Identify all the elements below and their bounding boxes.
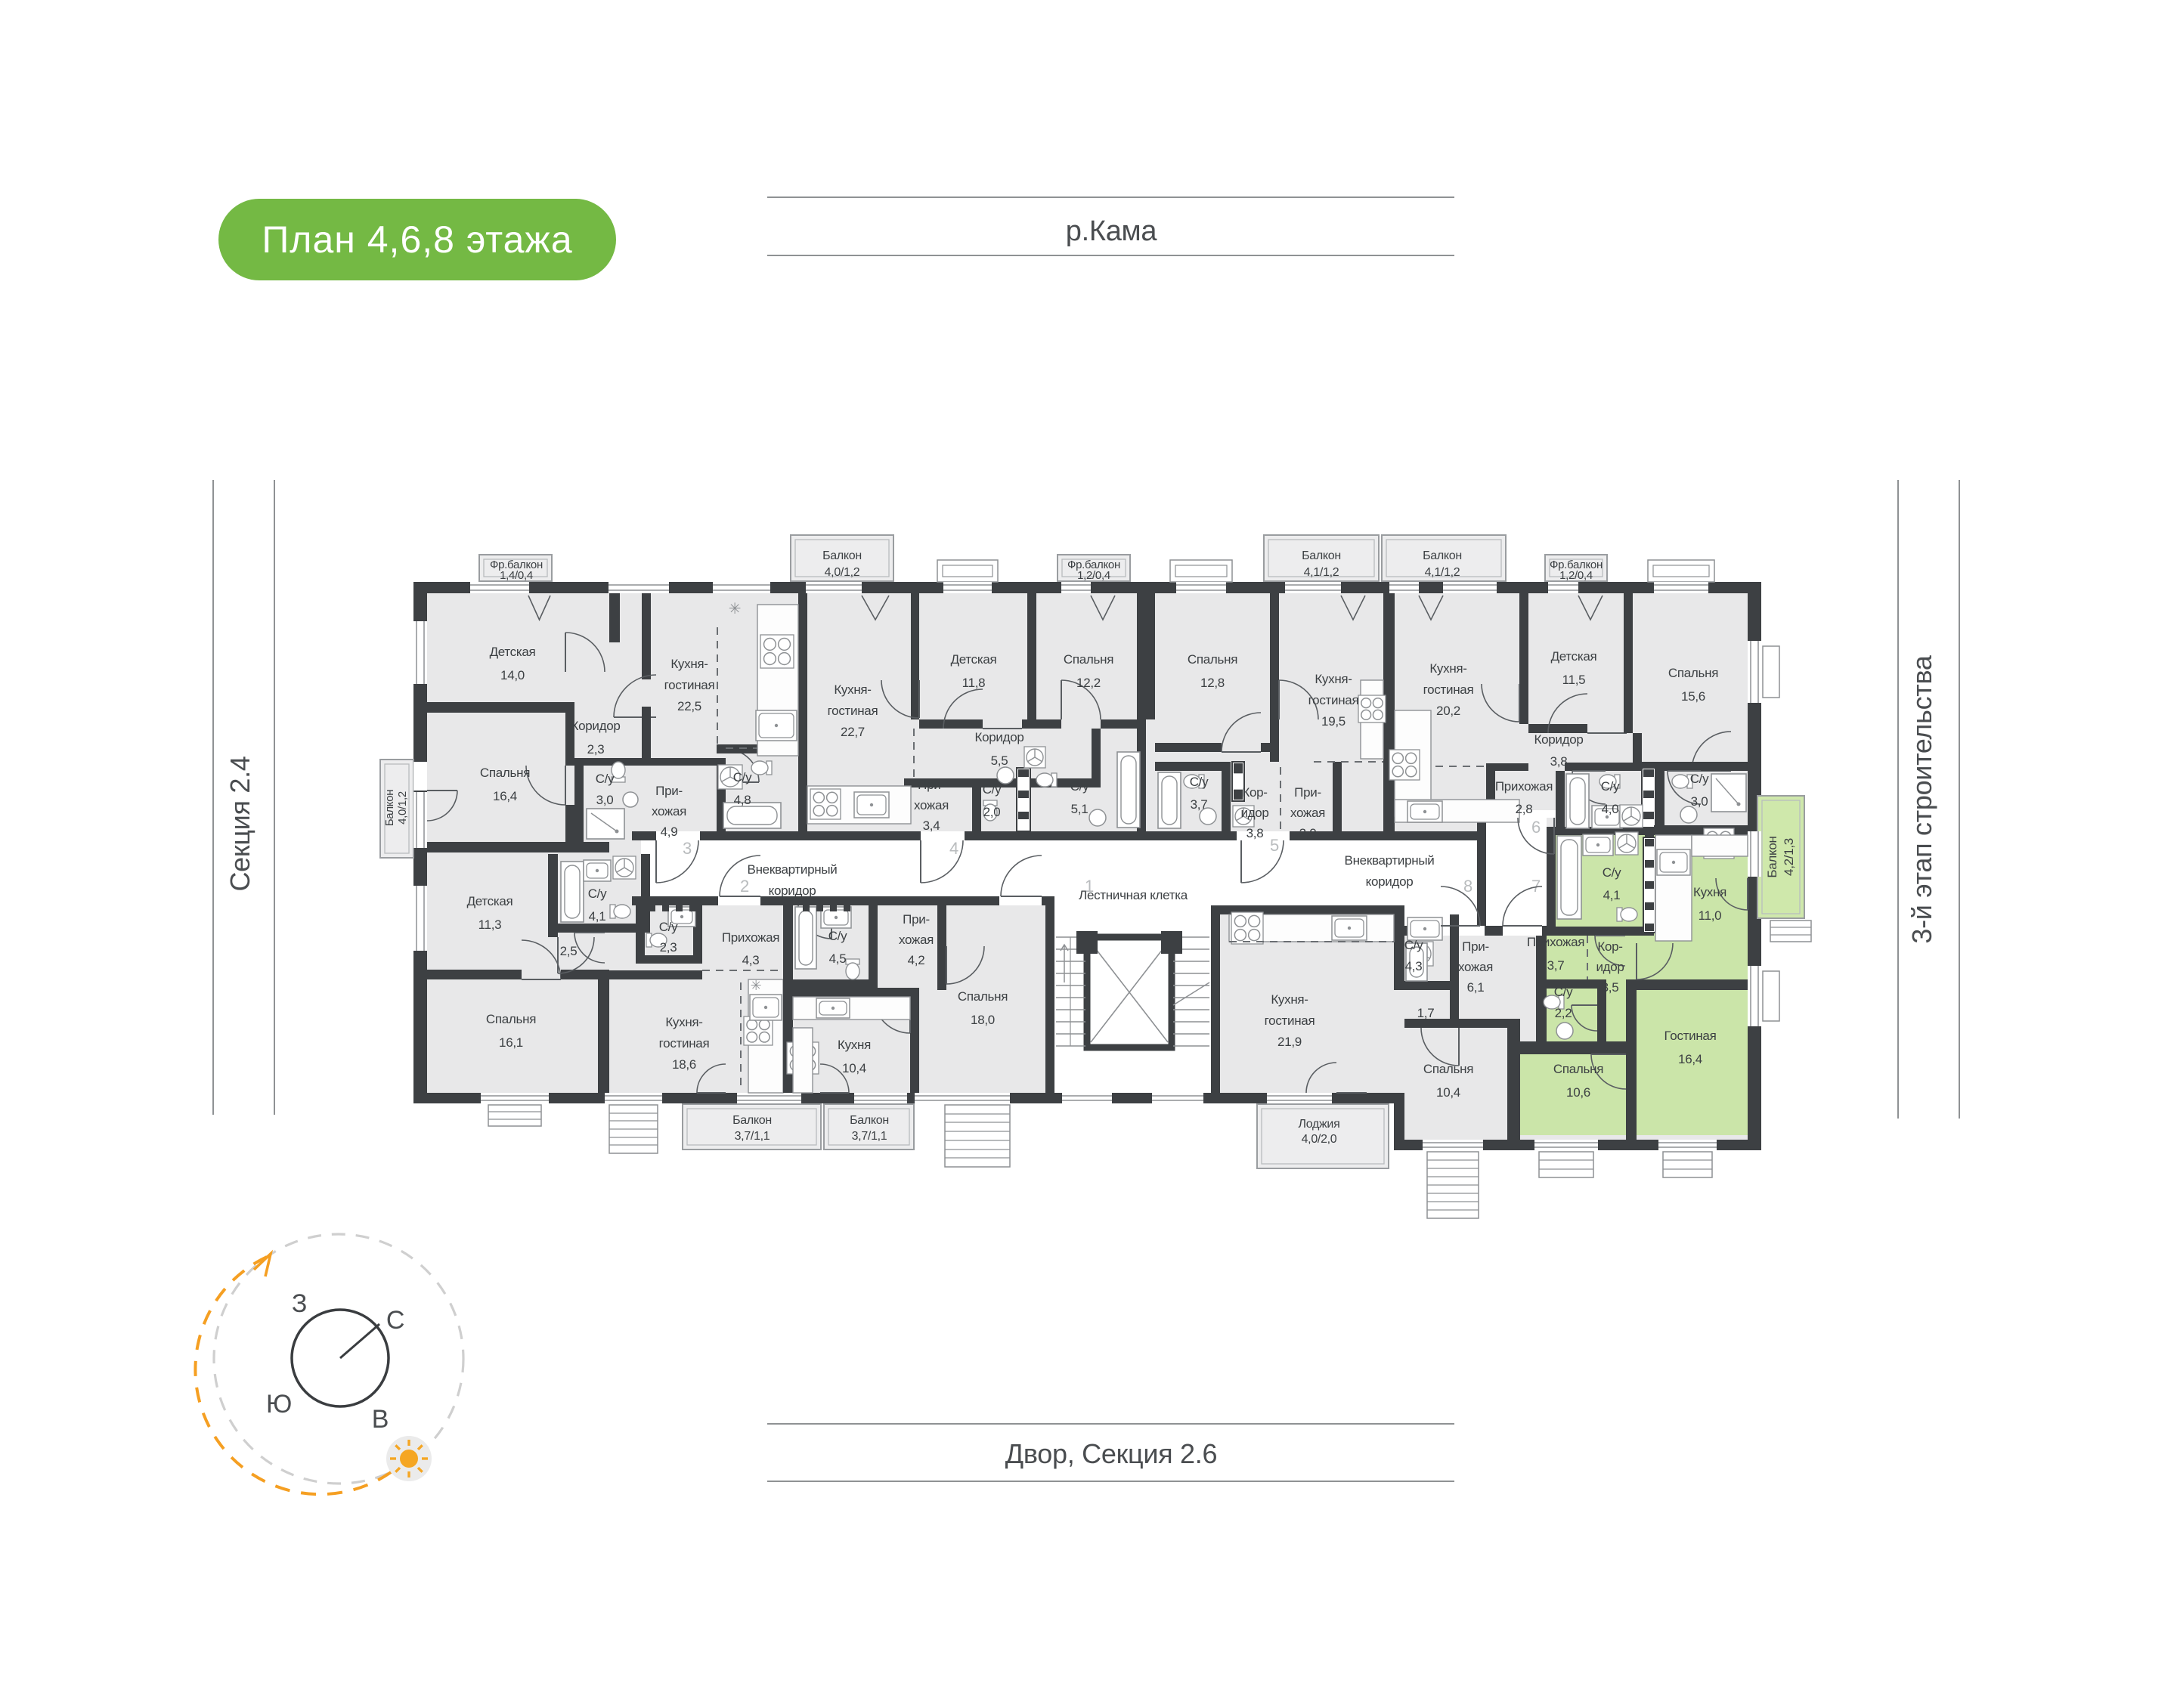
- svg-text:Спальня: Спальня: [1668, 666, 1718, 680]
- svg-text:С/у: С/у: [588, 886, 607, 901]
- svg-text:З: З: [292, 1289, 307, 1318]
- svg-text:Лоджия: Лоджия: [1299, 1118, 1340, 1131]
- svg-text:5: 5: [1270, 836, 1279, 855]
- svg-text:Спальня: Спальня: [958, 989, 1008, 1004]
- svg-text:Детская: Детская: [467, 894, 513, 908]
- svg-text:10,4: 10,4: [1436, 1085, 1460, 1100]
- svg-text:4,2: 4,2: [908, 953, 925, 967]
- svg-text:2,8: 2,8: [1516, 802, 1533, 816]
- svg-text:С/у: С/у: [983, 782, 1002, 797]
- svg-text:С/у: С/у: [1601, 779, 1620, 794]
- svg-text:Внеквартирный: Внеквартирный: [748, 862, 838, 877]
- svg-text:4,0/2,0: 4,0/2,0: [1302, 1133, 1337, 1146]
- svg-text:5,5: 5,5: [991, 753, 1008, 768]
- svg-text:С/у: С/у: [733, 770, 752, 784]
- svg-text:Спальня: Спальня: [1064, 652, 1113, 667]
- svg-text:16,4: 16,4: [1678, 1052, 1702, 1066]
- svg-text:1,4/0,4: 1,4/0,4: [500, 569, 533, 582]
- svg-text:При-: При-: [1294, 785, 1321, 800]
- svg-text:Балкон: Балкон: [732, 1114, 772, 1127]
- svg-text:11,5: 11,5: [1562, 673, 1586, 687]
- svg-text:Кухня: Кухня: [838, 1038, 871, 1052]
- svg-text:С/у: С/у: [828, 929, 847, 943]
- svg-text:3,0: 3,0: [1691, 794, 1708, 809]
- svg-text:10,6: 10,6: [1566, 1085, 1590, 1100]
- svg-text:4,1: 4,1: [589, 909, 606, 924]
- svg-text:4,0/1,2: 4,0/1,2: [825, 566, 860, 579]
- svg-text:4,9: 4,9: [661, 825, 678, 839]
- svg-text:16,1: 16,1: [499, 1035, 523, 1050]
- svg-text:2,5: 2,5: [560, 944, 578, 958]
- svg-text:С/у: С/у: [1404, 938, 1423, 952]
- svg-text:С/у: С/у: [1690, 772, 1709, 786]
- svg-text:Балкон: Балкон: [822, 549, 862, 562]
- svg-text:11,0: 11,0: [1699, 908, 1722, 923]
- svg-text:Внеквартирный: Внеквартирный: [1345, 853, 1435, 868]
- svg-text:Спальня: Спальня: [486, 1012, 536, 1026]
- svg-text:22,7: 22,7: [841, 725, 865, 739]
- svg-text:Кухня-: Кухня-: [670, 657, 708, 671]
- svg-text:хожая: хожая: [1458, 960, 1493, 974]
- svg-text:Прихожая: Прихожая: [1527, 935, 1584, 949]
- svg-text:Гостиная: Гостиная: [1664, 1029, 1717, 1043]
- svg-text:С/у: С/у: [1190, 775, 1209, 789]
- svg-text:3,7/1,1: 3,7/1,1: [852, 1130, 887, 1143]
- svg-text:✳: ✳: [751, 978, 762, 993]
- svg-text:гостиная: гостиная: [1308, 693, 1359, 707]
- svg-text:гостиная: гостиная: [659, 1036, 710, 1050]
- svg-text:Прихожая: Прихожая: [1495, 779, 1553, 794]
- svg-text:Лестничная клетка: Лестничная клетка: [1079, 888, 1188, 902]
- svg-text:С/у: С/у: [659, 920, 678, 934]
- svg-text:4,2/1,3: 4,2/1,3: [1782, 838, 1796, 876]
- svg-text:гостиная: гостиная: [828, 704, 878, 718]
- svg-text:19,5: 19,5: [1321, 714, 1346, 729]
- svg-text:Кухня-: Кухня-: [665, 1015, 702, 1029]
- svg-text:1,2/0,4: 1,2/0,4: [1077, 569, 1110, 582]
- svg-text:3-й этап строительства: 3-й этап строительства: [1906, 654, 1937, 944]
- svg-text:18,0: 18,0: [971, 1013, 995, 1027]
- svg-text:3,7: 3,7: [1547, 958, 1565, 973]
- svg-text:При-: При-: [1462, 939, 1489, 954]
- svg-text:Кухня-: Кухня-: [1429, 661, 1466, 676]
- svg-text:8: 8: [1463, 877, 1472, 896]
- svg-text:22,5: 22,5: [677, 699, 701, 713]
- svg-text:Спальня: Спальня: [480, 766, 530, 780]
- svg-text:4,1/1,2: 4,1/1,2: [1425, 566, 1460, 579]
- svg-text:Кухня: Кухня: [1693, 885, 1726, 899]
- svg-text:10,4: 10,4: [842, 1061, 866, 1075]
- svg-text:гостиная: гостиная: [1423, 682, 1474, 697]
- svg-text:21,9: 21,9: [1277, 1035, 1302, 1049]
- svg-text:хожая: хожая: [899, 933, 934, 947]
- svg-text:3,7: 3,7: [1191, 797, 1208, 812]
- svg-text:3,8: 3,8: [1246, 826, 1264, 840]
- svg-text:коридор: коридор: [769, 883, 816, 898]
- svg-text:С/у: С/у: [1070, 779, 1089, 794]
- svg-text:✳: ✳: [729, 601, 741, 617]
- svg-text:6: 6: [1531, 818, 1541, 837]
- svg-text:14,0: 14,0: [500, 668, 525, 682]
- svg-text:4,0: 4,0: [1602, 802, 1619, 816]
- svg-text:1,2/0,4: 1,2/0,4: [1559, 569, 1593, 582]
- svg-text:хожая: хожая: [652, 804, 686, 818]
- svg-text:3,4: 3,4: [923, 818, 940, 833]
- svg-text:Прихожая: Прихожая: [722, 930, 779, 945]
- svg-text:5,1: 5,1: [1071, 802, 1088, 816]
- svg-text:Детская: Детская: [490, 645, 536, 659]
- svg-text:Балкон: Балкон: [1302, 549, 1341, 562]
- svg-text:Кухня-: Кухня-: [834, 682, 871, 697]
- svg-text:1,7: 1,7: [1417, 1006, 1435, 1020]
- svg-text:11,8: 11,8: [962, 676, 986, 690]
- svg-text:При-: При-: [903, 912, 930, 927]
- svg-text:Двор, Секция 2.6: Двор, Секция 2.6: [1005, 1438, 1217, 1469]
- svg-text:2: 2: [740, 877, 749, 896]
- svg-text:Кухня-: Кухня-: [1271, 992, 1308, 1007]
- svg-text:3,0: 3,0: [596, 793, 614, 807]
- svg-text:Детская: Детская: [1551, 649, 1597, 664]
- svg-text:20,2: 20,2: [1436, 704, 1460, 718]
- svg-text:Ю: Ю: [266, 1390, 292, 1419]
- svg-text:15,6: 15,6: [1681, 689, 1705, 704]
- svg-text:12,8: 12,8: [1200, 676, 1225, 690]
- svg-text:идор: идор: [1240, 806, 1268, 820]
- svg-text:Коридор: Коридор: [974, 730, 1023, 744]
- svg-text:2,0: 2,0: [983, 805, 1001, 819]
- svg-text:16,4: 16,4: [493, 789, 517, 803]
- svg-text:Балкон: Балкон: [383, 790, 396, 827]
- svg-text:11,3: 11,3: [478, 917, 502, 932]
- svg-text:4: 4: [949, 839, 958, 858]
- svg-text:2,0: 2,0: [1299, 826, 1317, 840]
- svg-text:Кор-: Кор-: [1597, 939, 1622, 954]
- svg-text:1: 1: [1085, 877, 1094, 896]
- svg-text:Балкон: Балкон: [850, 1114, 889, 1127]
- svg-text:6,1: 6,1: [1467, 980, 1485, 995]
- svg-text:гостиная: гостиная: [1265, 1013, 1315, 1028]
- svg-text:Секция 2.4: Секция 2.4: [225, 756, 255, 891]
- svg-text:План 4,6,8 этажа: План 4,6,8 этажа: [262, 218, 572, 261]
- svg-text:4,8: 4,8: [734, 793, 751, 807]
- svg-text:При-: При-: [655, 784, 683, 798]
- svg-text:При-: При-: [918, 778, 945, 792]
- svg-text:С: С: [386, 1306, 404, 1335]
- svg-text:2,2: 2,2: [1555, 1006, 1572, 1020]
- svg-text:Спальня: Спальня: [1423, 1062, 1473, 1076]
- svg-text:3,8: 3,8: [1550, 754, 1568, 769]
- svg-text:Спальня: Спальня: [1553, 1062, 1603, 1076]
- svg-text:4,3: 4,3: [1405, 959, 1423, 973]
- svg-text:4,1: 4,1: [1603, 888, 1621, 902]
- svg-text:4,1/1,2: 4,1/1,2: [1304, 566, 1339, 579]
- svg-text:Кухня-: Кухня-: [1315, 672, 1352, 686]
- svg-text:12,2: 12,2: [1076, 676, 1101, 690]
- svg-text:хожая: хожая: [1290, 806, 1325, 820]
- svg-text:Балкон: Балкон: [1765, 836, 1779, 877]
- svg-text:коридор: коридор: [1366, 874, 1414, 889]
- svg-text:3,5: 3,5: [1602, 980, 1619, 995]
- svg-text:4,5: 4,5: [829, 951, 847, 966]
- svg-text:Балкон: Балкон: [1423, 549, 1462, 562]
- svg-text:18,6: 18,6: [672, 1057, 696, 1072]
- svg-text:Спальня: Спальня: [1188, 652, 1237, 667]
- svg-text:2,3: 2,3: [587, 742, 605, 757]
- svg-text:3,7/1,1: 3,7/1,1: [735, 1130, 770, 1143]
- svg-text:2,3: 2,3: [660, 940, 677, 955]
- svg-text:р.Кама: р.Кама: [1066, 215, 1158, 247]
- svg-text:С/у: С/у: [596, 772, 615, 786]
- svg-text:4,3: 4,3: [742, 953, 760, 967]
- svg-text:4,0/1,2: 4,0/1,2: [396, 791, 409, 825]
- svg-text:Коридор: Коридор: [1534, 732, 1583, 747]
- svg-text:Кор-: Кор-: [1242, 785, 1267, 800]
- svg-text:С/у: С/у: [1554, 985, 1573, 999]
- svg-text:3: 3: [683, 839, 692, 858]
- svg-text:Коридор: Коридор: [571, 719, 620, 733]
- svg-text:хожая: хожая: [914, 798, 949, 812]
- svg-text:С/у: С/у: [1603, 865, 1621, 880]
- svg-text:гостиная: гостиная: [664, 678, 715, 692]
- svg-text:В: В: [372, 1405, 389, 1434]
- svg-text:идор: идор: [1596, 960, 1624, 974]
- svg-text:Детская: Детская: [951, 652, 997, 667]
